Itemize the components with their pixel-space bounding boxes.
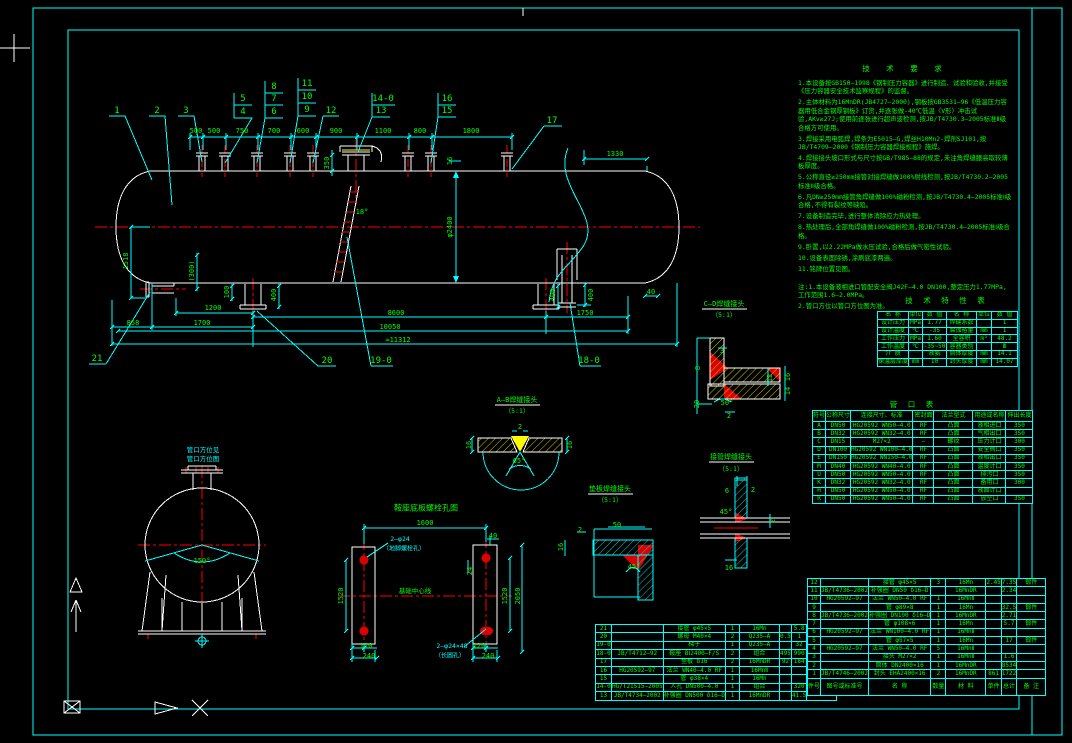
table-cell: 2 <box>808 661 821 669</box>
table-cell: 锻件 <box>1017 603 1046 611</box>
table-cell: 1 <box>992 319 1018 327</box>
table-cell: 凸面 <box>934 454 973 462</box>
table-cell <box>779 692 791 700</box>
table-cell: 9 <box>808 603 821 611</box>
table-cell: HG20592 WN50—4.0 <box>851 495 913 503</box>
table-cell: HG20592 WN50—4.0 <box>851 487 913 495</box>
table-cell: 350 <box>1006 446 1033 454</box>
notes-body: 1.本设备按GB150—1998《钢制压力容器》进行制造、试验和验收,并接受《压… <box>798 79 1012 311</box>
table-cell: 压力计口 <box>973 438 1006 446</box>
table-cell <box>612 658 664 666</box>
table-cell: 1.6 <box>1001 653 1016 661</box>
table-cell: 凸面 <box>934 495 973 503</box>
table-cell <box>779 675 791 683</box>
table-header-cell: 连接尺寸、标准 <box>851 411 913 422</box>
table-cell: 组合 <box>739 683 779 691</box>
table-cell: 温度计口 <box>973 462 1006 470</box>
table-header-cell: 符号 <box>813 411 826 422</box>
table-cell: JB/T4746—2002 <box>821 670 869 678</box>
table-cell: 32 <box>791 641 806 649</box>
table-cell: 工作温度 <box>878 343 909 351</box>
table-cell: 法兰 WN100—4.0 RF <box>868 628 930 636</box>
table-cell: 垫板 δ16 <box>663 658 725 666</box>
table-cell: 液氨 <box>923 350 947 358</box>
table-cell: DN40 <box>826 462 851 470</box>
table-cell: 封头 EHA2400×16 <box>868 670 930 678</box>
table-cell: DN32 <box>826 479 851 487</box>
table-cell: DN50 <box>826 495 851 503</box>
gasket-weld-yellow <box>342 150 529 452</box>
table-cell: 16MnⅡ <box>946 653 986 661</box>
table-cell: 16MnⅡ <box>946 595 986 603</box>
table-cell: 1 <box>931 637 946 645</box>
table-cell: 16Mn <box>946 637 986 645</box>
note-line: 11.铭牌位置见图。 <box>798 265 1012 273</box>
table-cell <box>779 683 791 691</box>
table-cell: RF <box>913 454 934 462</box>
nozzle-table-title: 管 口 表 <box>812 399 1014 410</box>
table-cell: 液相进口 <box>973 422 1006 430</box>
cad-viewport: 技 术 特 性 表 名 称单位数 值名 称单位数 值设计压力MPa1.77焊缝系… <box>0 0 1072 743</box>
table-cell: 16Mn <box>739 675 779 683</box>
table-cell: 350 <box>1006 462 1033 470</box>
table-cell: HG20592—97 <box>612 666 664 674</box>
table-cell: 1 <box>725 675 739 683</box>
note-line: 1.本设备按GB150—1998《钢制压力容器》进行制造、试验和验收,并接受《压… <box>798 79 1012 96</box>
table-cell: 300 <box>1006 438 1033 446</box>
registration-cross <box>0 8 523 62</box>
table-cell <box>791 666 806 674</box>
table-cell: 锻件 <box>1017 579 1046 587</box>
table-cell: 工作压力 <box>878 335 909 343</box>
note-line: 3.焊接采用电弧焊,焊条为E5015—G,焊丝H10Mn2-焊剂SJ101,按J… <box>798 135 1012 152</box>
table-cell: m³ <box>977 335 992 343</box>
table-cell: 16MnDR <box>946 587 986 595</box>
table-cell <box>986 645 1001 653</box>
table-cell <box>909 350 923 358</box>
table-cell <box>791 675 806 683</box>
table-cell <box>612 625 664 633</box>
table-cell: 16MnⅡ <box>739 666 779 674</box>
table-cell: U <box>813 471 826 479</box>
table-cell: 41.5 <box>791 692 806 700</box>
table-cell: 容器类别 <box>947 343 977 351</box>
table-cell <box>986 620 1001 628</box>
table-cell: C <box>813 438 826 446</box>
tech-characteristics-table: 名 称单位数 值名 称单位数 值设计压力MPa1.77焊缝系数1设计温度℃-35… <box>877 311 1018 367</box>
table-cell: 2.45 <box>986 579 1001 587</box>
table-cell: 16MnDR <box>739 692 779 700</box>
table-cell: 350 <box>1006 430 1033 438</box>
table-cell <box>1017 645 1046 653</box>
table-cell: B <box>813 430 826 438</box>
table-cell: RF <box>913 422 934 430</box>
table-cell <box>821 637 869 645</box>
table-cell: HG20592—97 <box>821 595 869 603</box>
table-cell: 法兰 WN50—4.0 RF <box>868 595 930 603</box>
table-cell: 5 <box>808 637 821 645</box>
table-cell: ℃ <box>909 327 923 335</box>
table-header-cell: 件号 <box>808 678 821 695</box>
table-cell: JB/T4736—2002 <box>821 587 869 595</box>
table-cell: 1 <box>931 620 946 628</box>
table-cell: 14.1 <box>992 350 1018 358</box>
table-cell: 5.7 <box>1001 620 1016 628</box>
table-cell: 筒体厚度 <box>947 350 977 358</box>
table-cell: JB/T4734—2002 <box>612 692 664 700</box>
table-cell: RF <box>913 471 934 479</box>
centerlines <box>95 138 700 652</box>
bom-table-right: 12接管 φ45×5316Mn2.457.35锻件11JB/T4736—2002… <box>807 578 1046 696</box>
table-cell: 21 <box>596 625 612 633</box>
table-cell: HG20592—97 <box>821 645 869 653</box>
table-cell: 1 <box>931 628 946 636</box>
table-cell: 11 <box>808 587 821 595</box>
nozzle-schedule-table: 符号公称尺寸连接尺寸、标准密封面法兰型式用途或名称伸出长度ADN50HG2059… <box>812 410 1033 504</box>
table-cell: RF <box>913 495 934 503</box>
table-cell: 16 <box>596 666 612 674</box>
table-header-cell: 伸出长度 <box>1006 411 1033 422</box>
table-cell: DN50 <box>826 487 851 495</box>
table-cell: 液面计口 <box>973 487 1006 495</box>
table-header-cell: 总计 <box>1001 678 1016 695</box>
table-cell: 495 <box>779 650 791 658</box>
table-cell <box>612 633 664 641</box>
table-cell <box>986 603 1001 611</box>
table-cell: 1 <box>931 603 946 611</box>
table-cell: DN100 <box>826 446 851 454</box>
table-cell: 16Mn <box>739 625 779 633</box>
table-cell: 1722 <box>1001 670 1016 678</box>
table-cell: 8 <box>808 612 821 620</box>
table-cell: 螺纹 <box>934 438 973 446</box>
table-cell: DN50 <box>826 422 851 430</box>
table-cell <box>986 595 1001 603</box>
table-cell: 14.07 <box>992 358 1018 366</box>
table-cell: MPa <box>909 335 923 343</box>
table-cell: DN150 <box>826 454 851 462</box>
table-cell: 300 <box>1006 479 1033 487</box>
table-cell: 861 <box>986 670 1001 678</box>
table-cell: HG20592 WN150—4.0 <box>851 454 913 462</box>
table-cell: 350 <box>1006 422 1033 430</box>
table-cell: 1 <box>725 692 739 700</box>
table-cell: 32.5 <box>1001 603 1016 611</box>
note-line: 7.设备制造完毕,进行整体消除应力热处理。 <box>798 212 1012 220</box>
table-cell: 7 <box>808 620 821 628</box>
table-cell: RF <box>913 479 934 487</box>
note-line: 9.卧置,以2.22MPa做水压试验,合格后做气密性试验。 <box>798 243 1012 251</box>
table-cell: H <box>813 487 826 495</box>
table-cell: 2 <box>931 670 946 678</box>
table-header-cell: 密封面 <box>913 411 934 422</box>
table-cell: 16Mn <box>946 603 986 611</box>
table-cell: D <box>813 446 826 454</box>
table-cell: -35~50 <box>923 343 947 351</box>
table-cell: 16MnDR <box>946 661 986 669</box>
table-cell: 法兰 WN40—4.0 RF <box>663 666 725 674</box>
north-marks <box>70 578 82 632</box>
table-cell: 8534 <box>1001 661 1016 669</box>
table-cell: 排污口 <box>973 471 1006 479</box>
table-cell: 2 <box>725 650 739 658</box>
table-cell: 1 <box>725 683 739 691</box>
table-cell: HG20592—97 <box>821 628 869 636</box>
table-cell: 管 φ38×4 <box>663 675 725 683</box>
table-cell <box>1001 595 1016 603</box>
table-cell: HG20592 WN40—4.0 <box>851 462 913 470</box>
corner-square <box>64 701 80 713</box>
table-cell: 管 φ89×8 <box>868 603 930 611</box>
table-cell: mm <box>909 358 923 366</box>
table-cell: 350 <box>1006 495 1033 503</box>
note-line: 4.焊接接头坡口形式与尺寸按GB/T985—88的规定,未注角焊缝腰高取较薄板厚… <box>798 154 1012 171</box>
notes-title: 技 术 要 求 <box>798 64 1012 74</box>
table-cell: 92 <box>779 658 791 666</box>
direction-arrow <box>155 702 177 714</box>
table-cell: mm <box>977 327 992 335</box>
table-cell: 19-0 <box>596 641 612 649</box>
table-cell: 焊缝系数 <box>947 319 977 327</box>
table-cell: 350 <box>1006 471 1033 479</box>
table-cell: 2 <box>725 658 739 666</box>
table-header-cell: 法兰型式 <box>934 411 973 422</box>
table-cell <box>1017 587 1046 595</box>
table-cell: 凸面 <box>934 422 973 430</box>
table-cell: 1.77 <box>923 319 947 327</box>
table-cell: 封头厚度 <box>947 358 977 366</box>
table-cell: 凸面 <box>934 430 973 438</box>
table-cell: 梯子 <box>663 641 725 649</box>
note-line: 2.主体材料为16MnDR(JB4727—2000),钢板按GB3531—96《… <box>798 98 1012 132</box>
note-line: 5.公称直径≥250mm接管对接焊缝做100%射线检测,按JB/T4730.2—… <box>798 173 1012 190</box>
table-cell: HG20592 WN100—4.0 <box>851 446 913 454</box>
table-cell: 法兰 WN50—4.0 RF <box>868 645 930 653</box>
table-cell: Ⅲ <box>992 343 1018 351</box>
table-cell: -35 <box>923 327 947 335</box>
table-cell: 5 <box>931 645 946 653</box>
table-cell: K <box>813 479 826 487</box>
table-cell: 1 <box>931 595 946 603</box>
table-cell: 接管 φ45×5 <box>868 579 930 587</box>
table-cell: RF <box>913 430 934 438</box>
table-cell <box>986 612 1001 620</box>
table-cell: 气相出口 <box>973 430 1006 438</box>
table-cell: 凸面 <box>934 479 973 487</box>
table-cell: 液相出口 <box>973 454 1006 462</box>
table-cell: RF <box>913 462 934 470</box>
table-cell: 补强圈 DN100 δ16—D <box>868 612 930 620</box>
table-cell: 1 <box>992 327 1018 335</box>
table-cell: 16MnDR <box>946 670 986 678</box>
table-cell: 320 <box>791 683 806 691</box>
table-cell: 10 <box>923 358 947 366</box>
table-cell <box>931 587 946 595</box>
table-cell <box>986 661 1001 669</box>
table-cell: 14-0 <box>596 683 612 691</box>
table-cell: 17 <box>596 658 612 666</box>
note-line: 2.管口方位以管口方位图为准。 <box>798 302 1012 310</box>
table-cell: DN50 <box>826 471 851 479</box>
table-cell: 2 <box>725 633 739 641</box>
table-cell <box>977 319 992 327</box>
dimension-lines <box>89 78 785 662</box>
table-cell <box>986 628 1001 636</box>
table-cell: 16MnDR <box>739 658 779 666</box>
table-cell: 16Mn <box>946 579 986 587</box>
table-cell: 锻件 <box>1017 637 1046 645</box>
table-cell: HG20592 WN32—4.0 <box>851 479 913 487</box>
table-cell: HG20592 WN50—4.0 <box>851 422 913 430</box>
table-cell: HG/T21515—2005 <box>612 683 664 691</box>
table-header-cell: 材 料 <box>946 678 986 695</box>
table-cell <box>1001 645 1016 653</box>
table-cell: 设计温度 <box>878 327 909 335</box>
table-cell: mm <box>977 358 992 366</box>
table-cell: 1 <box>725 625 739 633</box>
table-cell: — <box>913 438 934 446</box>
table-cell: 介 质 <box>878 350 909 358</box>
table-cell <box>1001 628 1016 636</box>
table-cell: JB/T4712—92 <box>612 650 664 658</box>
note-line: 8.热处理后,全部角焊缝做100%磁粉检测,按JB/T4730.4—2005标准… <box>798 223 1012 240</box>
table-cell: RF <box>913 446 934 454</box>
table-header-cell: 图号或标准号 <box>821 678 869 695</box>
note-line: 6.凡DN≥250mm接管角焊缝做100%磁粉检测,按JB/T4730.4—20… <box>798 193 1012 210</box>
table-cell: 2.34 <box>1001 587 1016 595</box>
table-cell: 1.60 <box>923 335 947 343</box>
table-cell: 放空口 <box>973 495 1006 503</box>
table-header-cell: 名 称 <box>868 678 930 695</box>
table-cell: 4 <box>808 645 821 653</box>
table-cell: 16MnDR <box>946 612 986 620</box>
note-line: 10.设备表面除锈,涂刷底漆两遍。 <box>798 254 1012 262</box>
table-cell: 10 <box>808 595 821 603</box>
table-cell <box>1017 595 1046 603</box>
table-cell <box>1017 670 1046 678</box>
base-plate-detail <box>352 545 497 644</box>
table-cell: 组合 <box>739 650 779 658</box>
internal-ladder <box>333 186 359 282</box>
table-cell <box>1017 628 1046 636</box>
table-cell <box>1017 612 1046 620</box>
table-cell: RF <box>913 487 934 495</box>
table-cell: mm <box>977 350 992 358</box>
table-cell <box>821 603 869 611</box>
table-cell: HG20592 WN32—4.0 <box>851 430 913 438</box>
table-cell: 6 <box>808 628 821 636</box>
table-cell: 腐蚀裕量 <box>947 327 977 335</box>
table-cell: A <box>813 422 826 430</box>
table-cell: 补强圈 DN50 δ16—D <box>868 587 930 595</box>
table-cell: 16MnⅡ <box>946 645 986 653</box>
table-cell <box>986 637 1001 645</box>
table-cell: 管 φ57×5 <box>868 637 930 645</box>
table-cell: DN32 <box>826 430 851 438</box>
table-cell: 人孔 DN500—4.0 <box>663 683 725 691</box>
table-cell <box>779 666 791 674</box>
table-cell: 350 <box>1006 454 1033 462</box>
table-cell: 1 <box>931 612 946 620</box>
table-cell: 补强圈 DN500 δ16—D <box>663 692 725 700</box>
table-cell: 16MnⅡ <box>946 628 986 636</box>
table-cell: 筒体 DN2400×16 <box>868 661 930 669</box>
table-cell: E <box>813 454 826 462</box>
table-header-cell: 备 注 <box>1017 678 1046 695</box>
table-cell: 全容积 <box>947 335 977 343</box>
bom-table-left: 21接管 φ45×5116Mn5.8锻件20螺母 M40×42Q235—A0.5… <box>595 624 837 701</box>
table-cell: 保温层厚度 <box>878 358 909 366</box>
table-cell: M <box>813 462 826 470</box>
x-mark <box>192 700 208 716</box>
red-solid <box>148 192 758 639</box>
table-cell: HG20592 WN50—4.0 <box>851 471 913 479</box>
table-cell: 18-0 <box>596 650 612 658</box>
table-cell: 7.35 <box>1001 579 1016 587</box>
table-cell <box>1017 661 1046 669</box>
table-cell <box>821 579 869 587</box>
table-cell: 安全阀口 <box>973 446 1006 454</box>
table-cell <box>986 587 1001 595</box>
table-cell: 接管 φ45×5 <box>663 625 725 633</box>
table-cell <box>779 625 791 633</box>
table-cell: 5.8 <box>791 625 806 633</box>
table-header-cell: 单件 <box>986 678 1001 695</box>
table-cell <box>821 653 869 661</box>
table-cell <box>821 661 869 669</box>
table-cell: JB/T4736—2002 <box>821 612 869 620</box>
table-cell: 备用口 <box>973 479 1006 487</box>
table-cell: 184 <box>791 658 806 666</box>
table-cell: 凸面 <box>934 462 973 470</box>
table-cell: 0.5 <box>779 633 791 641</box>
table-cell: 1 <box>725 641 739 649</box>
technical-notes: 技 术 要 求 1.本设备按GB150—1998《钢制压力容器》进行制造、试验和… <box>798 64 1012 313</box>
table-cell: 管 φ108×6 <box>868 620 930 628</box>
table-cell: 1 <box>725 666 739 674</box>
table-cell <box>1006 487 1033 495</box>
table-cell: 螺母 M40×4 <box>663 633 725 641</box>
saddle-supports <box>240 284 559 309</box>
note-line: 注:1.本设备液相进口管配安全阀J42F—4.0 DN100,整定压力1.77M… <box>798 283 1012 300</box>
table-cell: 2.71 <box>1001 612 1016 620</box>
table-cell <box>779 641 791 649</box>
table-cell: 3 <box>931 579 946 587</box>
table-cell: 990 <box>791 650 806 658</box>
table-cell: 接头 M27×2 <box>868 653 930 661</box>
table-cell: 凸面 <box>934 446 973 454</box>
table-cell: R <box>813 495 826 503</box>
table-cell: 3 <box>808 653 821 661</box>
table-cell: 凸面 <box>934 487 973 495</box>
table-cell <box>612 675 664 683</box>
table-cell: 锻件 <box>1017 620 1046 628</box>
table-cell: 20 <box>596 633 612 641</box>
table-cell <box>986 653 1001 661</box>
table-cell: Q235—A <box>739 633 779 641</box>
table-cell: 1 <box>931 653 946 661</box>
table-cell: 15 <box>596 675 612 683</box>
table-cell: 12 <box>808 579 821 587</box>
table-cell: 13 <box>596 692 612 700</box>
table-header-cell: 用途或名称 <box>973 411 1006 422</box>
table-cell: 1 <box>808 670 821 678</box>
table-cell: 鞍座 BⅠ2400—F/S <box>663 650 725 658</box>
table-header-cell: 公称尺寸 <box>826 411 851 422</box>
sheet-symbols <box>0 8 754 716</box>
table-cell: Q235—A <box>739 641 779 649</box>
table-cell: 48.2 <box>992 335 1018 343</box>
